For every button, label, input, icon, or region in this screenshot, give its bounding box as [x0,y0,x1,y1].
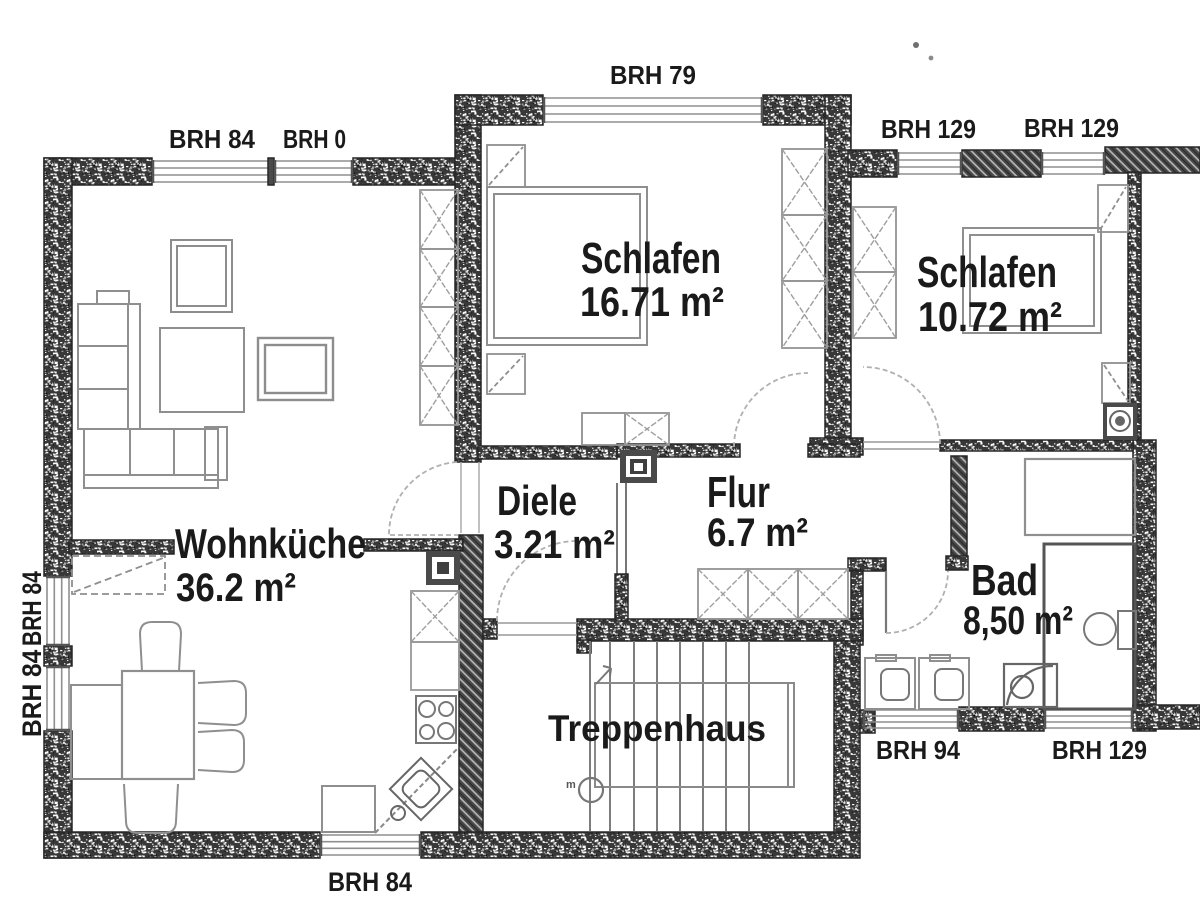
svg-text:10.72 m²: 10.72 m² [918,293,1062,340]
svg-text:8,50 m²: 8,50 m² [963,599,1073,643]
svg-text:BRH 84: BRH 84 [169,124,255,154]
svg-text:Schlafen: Schlafen [581,234,721,283]
svg-text:BRH 129: BRH 129 [881,114,976,144]
svg-text:Schlafen: Schlafen [917,248,1057,297]
svg-text:BRH 94: BRH 94 [876,735,960,765]
svg-text:BRH 0: BRH 0 [283,124,346,154]
svg-text:16.71 m²: 16.71 m² [580,278,724,325]
svg-text:6.7 m²: 6.7 m² [707,511,808,555]
svg-text:m: m [566,779,576,791]
svg-text:Flur: Flur [707,468,770,517]
svg-text:BRH 129: BRH 129 [1052,735,1147,765]
svg-text:BRH 129: BRH 129 [1024,113,1119,143]
svg-text:Wohnküche: Wohnküche [175,520,366,567]
svg-text:Bad: Bad [971,556,1038,605]
svg-text:BRH 84: BRH 84 [18,649,47,737]
svg-text:3.21 m²: 3.21 m² [494,523,615,567]
svg-text:Treppenhaus: Treppenhaus [548,708,766,749]
svg-text:BRH 84: BRH 84 [18,571,48,646]
svg-text:Diele: Diele [497,477,577,524]
svg-text:BRH 84: BRH 84 [328,867,412,897]
svg-text:BRH 79: BRH 79 [610,60,696,90]
svg-text:36.2 m²: 36.2 m² [176,566,296,610]
